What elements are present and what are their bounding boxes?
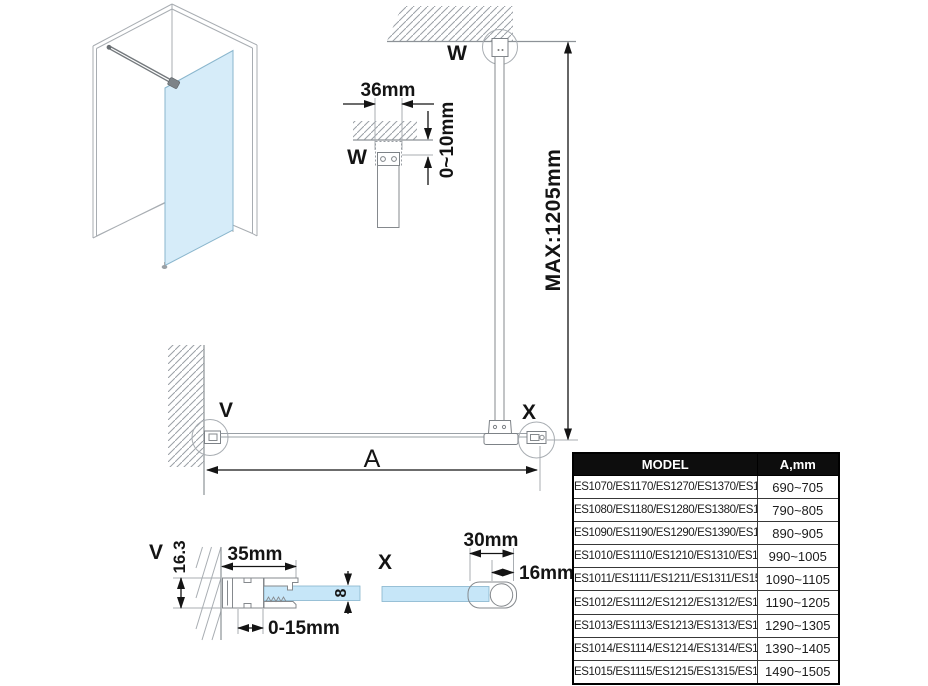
a-range-cell: 1490~1505 <box>757 660 839 684</box>
dim-16mm: 16mm <box>492 560 574 584</box>
a-range-cell: 890~905 <box>757 522 839 545</box>
dim-36mm-label: 36mm <box>361 80 416 101</box>
table-header-row: MODEL A,mm <box>573 453 839 476</box>
a-range-cell: 1290~1305 <box>757 614 839 637</box>
dim-16-3-label: 16.3 <box>170 540 189 573</box>
detail-x-view: X 30mm 16mm <box>378 530 574 608</box>
model-cell: ES1013/ES1113/ES1213/ES1313/ES1513 <box>573 614 757 637</box>
dim-0-10mm: 0~10mm <box>402 102 458 185</box>
wall-bracket-section <box>376 142 402 166</box>
model-cell: ES1012/ES1112/ES1212/ES1312/ES1512 <box>573 591 757 614</box>
model-cell: ES1015/ES1115/ES1215/ES1315/ES1515 <box>573 660 757 684</box>
support-bar-holder <box>490 584 512 606</box>
a-range-cell: 1090~1105 <box>757 568 839 591</box>
wall-left <box>93 4 172 238</box>
table-row: ES1013/ES1113/ES1213/ES1313/ES1513 1290~… <box>573 614 839 637</box>
wall-hatch <box>168 345 204 467</box>
installation-drawing-page: 36mm W 0~10mm W MAX:1205mm <box>0 0 928 686</box>
table-row: ES1010/ES1110/ES1210/ES1310/ES1510 990~1… <box>573 545 839 568</box>
model-cell: ES1011/ES1111/ES1211/ES1311/ES1511 <box>573 568 757 591</box>
wall-hatch-v <box>196 547 221 640</box>
model-cell: ES1080/ES1180/ES1280/ES1380/ES1580 <box>573 499 757 522</box>
dim-30mm: 30mm <box>464 530 519 581</box>
bar-wall-mount <box>107 45 112 50</box>
detail-v-label: V <box>149 541 163 564</box>
plan-x-label: X <box>522 401 536 424</box>
glass-plan <box>221 434 528 438</box>
dim-max-label: MAX:1205mm <box>542 149 565 292</box>
model-cell: ES1070/ES1170/ES1270/ES1370/ES1570 <box>573 476 757 499</box>
support-bar <box>107 45 181 89</box>
detail-w-view: 36mm W 0~10mm <box>343 80 458 228</box>
dim-35mm: 35mm <box>222 544 296 578</box>
table-row: ES1012/ES1112/ES1212/ES1312/ES1512 1190~… <box>573 591 839 614</box>
wall-profile-plan <box>205 431 221 444</box>
elevation-view: W MAX:1205mm <box>387 6 576 440</box>
dim-0-15mm-label: 0-15mm <box>268 618 340 639</box>
plan-view: V X A <box>168 345 578 495</box>
dim-max-1205mm: MAX:1205mm <box>542 43 568 440</box>
dim-a: A <box>207 445 540 491</box>
support-bar-section <box>378 166 400 228</box>
table-header-a: A,mm <box>757 453 839 476</box>
detail-x-label: X <box>378 551 392 574</box>
table-row: ES1090/ES1190/ES1290/ES1390/ES1590 890~9… <box>573 522 839 545</box>
bar-clamp-plan <box>484 421 518 445</box>
ceiling-hatch-right <box>387 6 513 41</box>
a-range-cell: 790~805 <box>757 499 839 522</box>
dim-35mm-label: 35mm <box>228 544 283 565</box>
dim-16mm-label: 16mm <box>519 563 574 584</box>
end-profile-plan <box>527 432 546 444</box>
a-range-cell: 690~705 <box>757 476 839 499</box>
a-range-cell: 990~1005 <box>757 545 839 568</box>
table-header-model: MODEL <box>573 453 757 476</box>
ceiling-bracket <box>492 39 508 57</box>
a-range-cell: 1390~1405 <box>757 637 839 660</box>
table-row: ES1080/ES1180/ES1280/ES1380/ES1580 790~8… <box>573 499 839 522</box>
glass-section-x <box>382 587 489 602</box>
table-row: ES1014/ES1114/ES1214/ES1314/ES1514 1390~… <box>573 637 839 660</box>
table-row: ES1011/ES1111/ES1211/ES1311/ES1511 1090~… <box>573 568 839 591</box>
dim-0-10mm-label: 0~10mm <box>437 102 458 179</box>
ceiling-hatch <box>353 121 417 140</box>
a-range-cell: 1190~1205 <box>757 591 839 614</box>
detail-v-view: V 16.3 35mm 8 <box>149 540 360 640</box>
detail-w-label: W <box>347 146 367 169</box>
dim-30mm-label: 30mm <box>464 530 519 551</box>
model-cell: ES1010/ES1110/ES1210/ES1310/ES1510 <box>573 545 757 568</box>
isometric-view <box>93 4 257 269</box>
table-row: ES1015/ES1115/ES1215/ES1315/ES1515 1490~… <box>573 660 839 684</box>
dim-0-15mm: 0-15mm <box>238 609 340 639</box>
elevation-w-label: W <box>447 42 467 65</box>
dim-glass-8: 8 <box>333 571 350 614</box>
dim-16-3: 16.3 <box>170 540 221 608</box>
model-cell: ES1014/ES1114/ES1214/ES1314/ES1514 <box>573 637 757 660</box>
model-cell: ES1090/ES1190/ES1290/ES1390/ES1590 <box>573 522 757 545</box>
dim-a-label: A <box>364 445 381 473</box>
dim-8-label: 8 <box>333 588 350 597</box>
table-row: ES1070/ES1170/ES1270/ES1370/ES1570 690~7… <box>573 476 839 499</box>
model-table: MODEL A,mm ES1070/ES1170/ES1270/ES1370/E… <box>572 452 840 685</box>
support-bar-front <box>495 57 504 421</box>
plan-v-label: V <box>219 399 233 422</box>
